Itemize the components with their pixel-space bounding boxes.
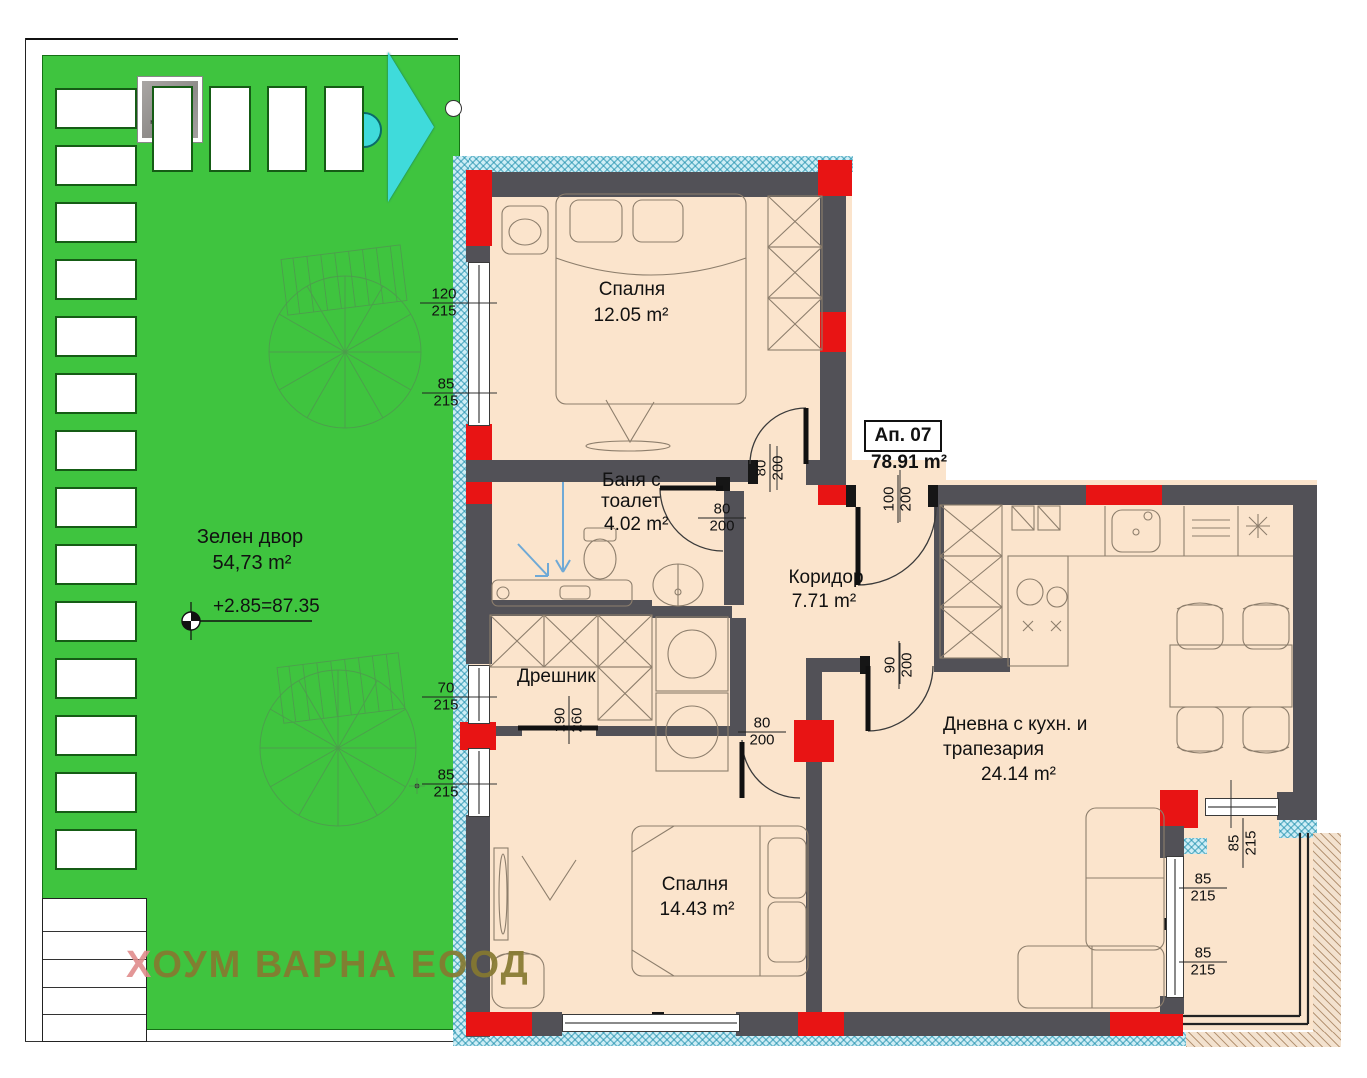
wall-segment xyxy=(1277,792,1317,820)
wall-segment xyxy=(496,726,522,736)
stair-line xyxy=(43,931,146,932)
room-label-corridor: Коридор xyxy=(788,567,863,588)
parking-spot xyxy=(55,202,137,243)
dimension-height: 260 xyxy=(570,696,586,744)
yard-name: Зелен двор xyxy=(197,525,303,549)
site-boundary-top xyxy=(25,38,458,40)
parking-spot xyxy=(55,259,137,300)
parking-spot xyxy=(55,544,137,585)
dimension-width: 70 xyxy=(422,681,470,698)
dimension-label: 80200 xyxy=(698,502,746,535)
window xyxy=(1205,798,1279,816)
wall-segment xyxy=(1160,790,1198,828)
parking-slat xyxy=(152,86,193,172)
dimension-label: 90200 xyxy=(883,641,916,689)
dimension-height: 200 xyxy=(899,475,915,523)
wall-segment xyxy=(820,196,846,312)
stair-line xyxy=(43,987,146,988)
wall-segment xyxy=(806,460,846,485)
stair-line xyxy=(43,1014,146,1015)
dimension-height: 200 xyxy=(698,519,746,535)
parking-spot xyxy=(55,373,137,414)
parking-slat xyxy=(324,86,364,172)
wall-segment xyxy=(794,720,834,762)
parking-spot xyxy=(55,658,137,699)
wall-segment xyxy=(532,1012,562,1036)
wall-segment xyxy=(466,246,490,262)
dimension-label: 100200 xyxy=(882,475,915,523)
apartment-total-area: 78.91 m² xyxy=(861,452,957,474)
room-label-bathroom-2: тоалет xyxy=(601,491,660,512)
room-label-closet: Дрешник xyxy=(517,666,596,687)
watermark-prefix: Х xyxy=(126,944,152,986)
dimension-height: 200 xyxy=(738,733,786,749)
entrance-arrow-icon xyxy=(388,52,434,202)
wall-segment xyxy=(736,1012,798,1036)
wall-segment xyxy=(1160,996,1184,1014)
yard-elevation: +2.85=87.35 xyxy=(213,596,320,617)
wall-segment xyxy=(846,485,856,507)
window xyxy=(468,262,490,426)
site-boundary-left xyxy=(25,38,26,1042)
parking-spot xyxy=(55,88,137,129)
room-label-bedroom-2: Спалня xyxy=(662,874,728,895)
wall-segment xyxy=(1160,826,1184,858)
room-area-living: 24.14 m² xyxy=(981,764,1056,785)
dimension-height: 215 xyxy=(1244,819,1260,867)
wall-segment xyxy=(596,726,746,736)
dimension-width: 80 xyxy=(754,444,771,492)
wall-segment xyxy=(466,504,492,664)
room-area-corridor: 7.71 m² xyxy=(792,591,856,612)
room-floor xyxy=(466,170,852,482)
wall-segment xyxy=(934,505,944,671)
wall-segment xyxy=(466,172,820,197)
wall-segment xyxy=(818,160,852,196)
wall-segment xyxy=(1162,485,1293,505)
parking-spot xyxy=(55,715,137,756)
window xyxy=(562,1014,740,1032)
dimension-width: 190 xyxy=(553,696,570,744)
dimension-label: 80200 xyxy=(754,444,787,492)
wall-segment xyxy=(652,606,732,618)
wall-segment xyxy=(488,600,652,616)
parking-spot xyxy=(55,316,137,357)
dimension-height: 200 xyxy=(771,444,787,492)
room-floor xyxy=(810,828,1183,1034)
window xyxy=(468,748,490,817)
dimension-label: 80200 xyxy=(738,716,786,749)
wall-segment xyxy=(466,170,492,246)
dimension-width: 80 xyxy=(698,502,746,519)
wall-segment xyxy=(1110,1012,1183,1036)
dimension-width: 85 xyxy=(422,768,470,785)
window xyxy=(468,665,490,724)
wall-segment xyxy=(1293,485,1317,817)
dimension-width: 80 xyxy=(738,716,786,733)
wall-segment xyxy=(936,485,1086,505)
dimension-width: 90 xyxy=(883,641,900,689)
dimension-label: 85215 xyxy=(1227,819,1260,867)
room-label-bathroom-1: Баня с xyxy=(602,470,661,491)
parking-spot xyxy=(55,145,137,186)
room-label-living-1: Дневна с кухн. и xyxy=(943,714,1087,735)
dimension-height: 215 xyxy=(1179,963,1227,979)
dimension-height: 215 xyxy=(422,698,470,714)
dimension-width: 85 xyxy=(1179,946,1227,963)
dimension-height: 200 xyxy=(900,641,916,689)
floor-plan-page: HOMEVARNA Зелен двор 54,73 m² +2.85=87.3… xyxy=(0,0,1367,1078)
dimension-height: 215 xyxy=(420,304,468,320)
dimension-label: 70215 xyxy=(422,681,470,714)
dimension-width: 85 xyxy=(422,377,470,394)
parking-spot xyxy=(55,430,137,471)
dimension-width: 85 xyxy=(1227,819,1244,867)
dimension-label: 85215 xyxy=(422,377,470,410)
parking-slat xyxy=(267,86,307,172)
insulation-hatch xyxy=(1183,838,1207,854)
parking-spot xyxy=(55,487,137,528)
parking-spot xyxy=(55,772,137,813)
dimension-height: 215 xyxy=(422,394,470,410)
watermark: ХОУМ ВАРНА ЕООД xyxy=(126,944,530,987)
dimension-width: 120 xyxy=(420,287,468,304)
parking-spot xyxy=(55,601,137,642)
dimension-width: 85 xyxy=(1179,872,1227,889)
wall-segment xyxy=(806,658,868,672)
wall-segment xyxy=(844,1012,1110,1036)
wall-segment xyxy=(716,477,730,491)
dimension-width: 100 xyxy=(882,475,899,523)
wall-segment xyxy=(820,312,846,352)
terrace-hatch-band xyxy=(1186,1032,1341,1047)
dimension-height: 215 xyxy=(1179,889,1227,905)
wall-segment xyxy=(730,618,746,728)
wall-segment xyxy=(798,1012,844,1036)
room-label-living-2: трапезария xyxy=(943,739,1044,760)
dimension-label: 85215 xyxy=(1179,872,1227,905)
wall-segment xyxy=(928,485,938,507)
watermark-rest: ОУМ ВАРНА ЕООД xyxy=(152,944,529,986)
wall-segment xyxy=(460,722,496,750)
wall-segment xyxy=(806,658,822,1012)
terrace-hatch-band xyxy=(1313,833,1341,1047)
yard-area: 54,73 m² xyxy=(213,551,292,575)
wall-segment xyxy=(860,656,870,674)
dimension-height: 215 xyxy=(422,785,470,801)
insulation-hatch xyxy=(453,156,853,172)
wall-segment xyxy=(466,1012,532,1036)
wall-segment xyxy=(1086,485,1162,505)
wall-segment xyxy=(934,658,1010,672)
small-circle-marker xyxy=(445,100,462,117)
dimension-label: 120215 xyxy=(420,287,468,320)
room-area-bedroom-1: 12.05 m² xyxy=(594,305,669,326)
apartment-number-badge: Ап. 07 xyxy=(864,420,942,452)
wall-segment xyxy=(466,815,490,1037)
room-area-bedroom-2: 14.43 m² xyxy=(660,899,735,920)
dimension-label: 190260 xyxy=(553,696,586,744)
parking-spot xyxy=(55,829,137,870)
room-area-bathroom: 4.02 m² xyxy=(604,514,668,535)
dimension-label: 85215 xyxy=(1179,946,1227,979)
parking-slat xyxy=(209,86,251,172)
dimension-label: 85215 xyxy=(422,768,470,801)
room-label-bedroom-1: Спалня xyxy=(599,279,665,300)
